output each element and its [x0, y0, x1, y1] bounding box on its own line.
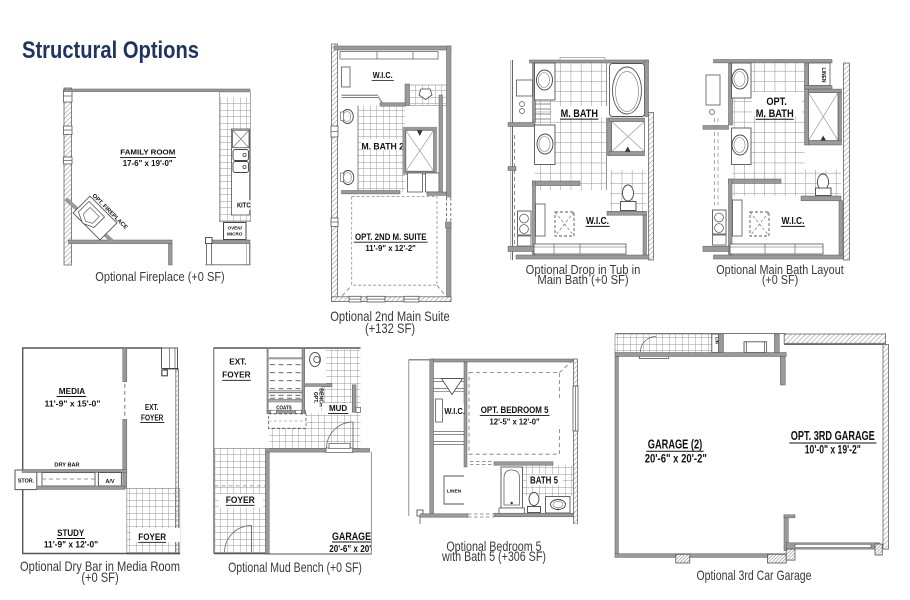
svg-text:FOYER: FOYER	[222, 370, 251, 380]
svg-text:OVEN/: OVEN/	[228, 226, 243, 231]
svg-text:LINEN: LINEN	[447, 489, 462, 495]
svg-text:LINEN: LINEN	[820, 68, 826, 83]
svg-text:EXT.: EXT.	[145, 402, 158, 412]
svg-text:OPT. BEDROOM 5: OPT. BEDROOM 5	[481, 405, 549, 416]
svg-text:KITC: KITC	[237, 201, 251, 210]
svg-text:EXT.: EXT.	[229, 356, 246, 366]
svg-text:M. BATH 2: M. BATH 2	[361, 142, 404, 152]
svg-text:M. BATH: M. BATH	[561, 108, 598, 120]
svg-text:W.I.C.: W.I.C.	[373, 71, 393, 80]
svg-text:BATH 5: BATH 5	[530, 476, 558, 487]
svg-text:STUDY: STUDY	[57, 528, 84, 538]
svg-text:20'-6" x 20'-2": 20'-6" x 20'-2"	[329, 543, 372, 555]
svg-text:STOR.: STOR.	[18, 479, 35, 485]
svg-text:OPT.: OPT.	[312, 392, 318, 404]
svg-text:FAMILY ROOM: FAMILY ROOM	[120, 148, 175, 157]
svg-text:OPT. 3RD GARAGE: OPT. 3RD GARAGE	[791, 428, 875, 443]
svg-text:11'-9" x 12'-2": 11'-9" x 12'-2"	[365, 244, 416, 253]
svg-text:OPT.: OPT.	[766, 96, 787, 108]
svg-text:20'-6" x 20'-2": 20'-6" x 20'-2"	[645, 452, 707, 466]
svg-text:FOYER: FOYER	[226, 495, 255, 505]
svg-text:11'-9" x 15'-0": 11'-9" x 15'-0"	[45, 399, 101, 409]
svg-text:W.I.C.: W.I.C.	[586, 216, 609, 227]
svg-text:OPT. 2ND M. SUITE: OPT. 2ND M. SUITE	[355, 232, 427, 242]
svg-text:DRY BAR: DRY BAR	[54, 463, 79, 469]
svg-text:FOYER: FOYER	[138, 532, 166, 542]
svg-text:GARAGE: GARAGE	[332, 531, 371, 543]
svg-text:A/V: A/V	[106, 479, 115, 485]
svg-text:17-6" x 19'-0": 17-6" x 19'-0"	[123, 159, 173, 168]
svg-text:W.I.C.: W.I.C.	[782, 216, 805, 227]
svg-text:M. BATH: M. BATH	[756, 108, 794, 120]
svg-text:W.I.C.: W.I.C.	[444, 407, 465, 416]
svg-text:MUD: MUD	[329, 403, 347, 413]
svg-text:10'-0" x 19'-2": 10'-0" x 19'-2"	[805, 443, 861, 457]
svg-text:MICRO: MICRO	[227, 232, 243, 237]
svg-text:FOYER: FOYER	[141, 412, 164, 422]
svg-text:MEDIA: MEDIA	[59, 386, 85, 396]
svg-text:11'-9" x 12'-0": 11'-9" x 12'-0"	[44, 540, 98, 550]
svg-text:12'-5" x 12'-0": 12'-5" x 12'-0"	[490, 417, 540, 427]
svg-text:GARAGE (2): GARAGE (2)	[648, 437, 702, 452]
